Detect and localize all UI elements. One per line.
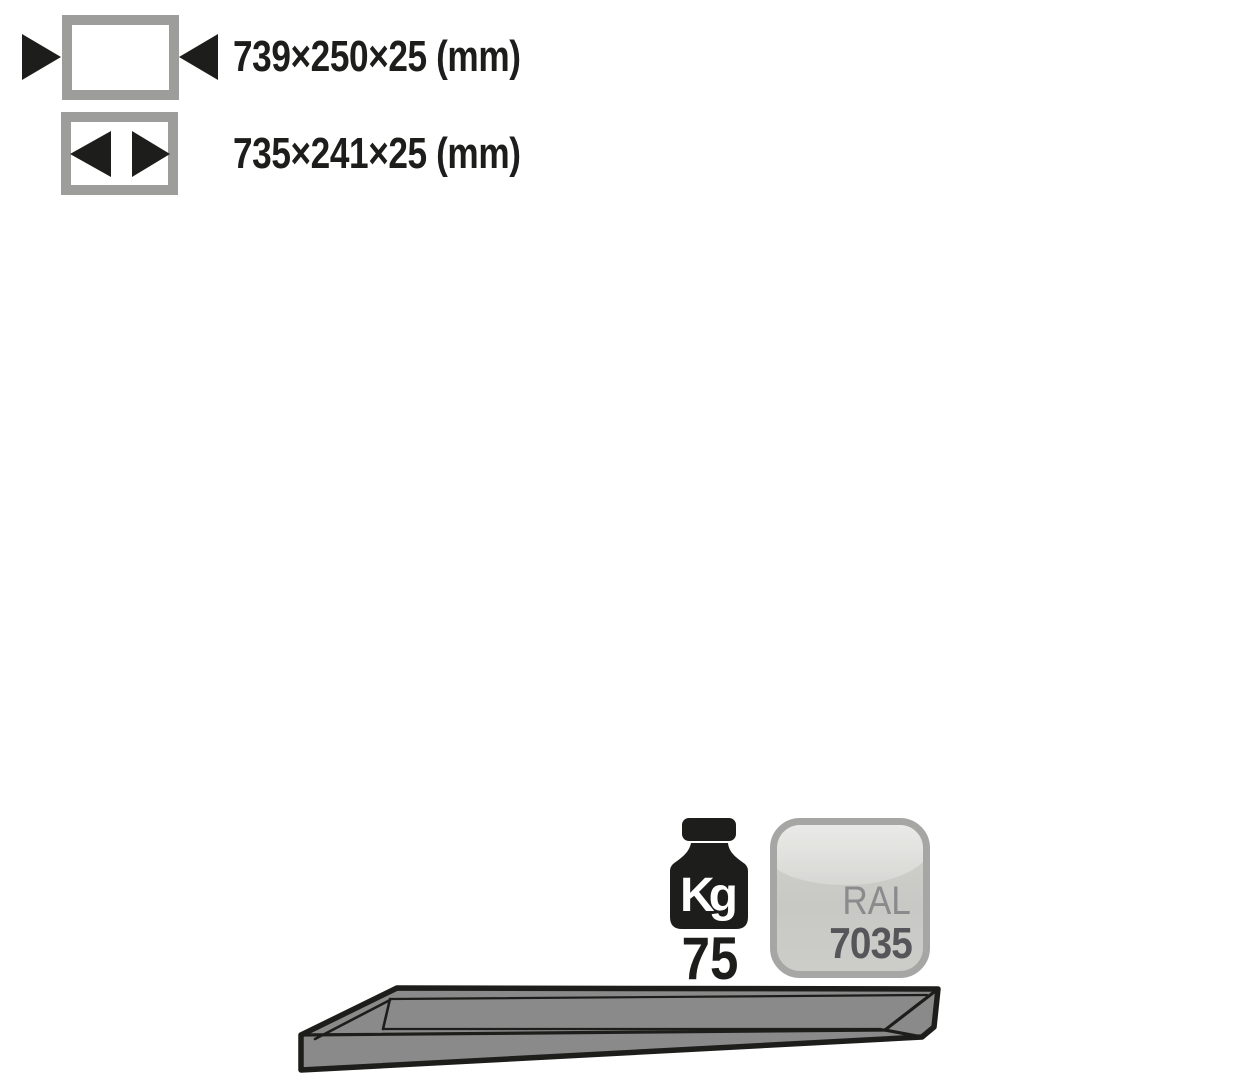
shelf-tray-illustration	[293, 982, 953, 1082]
arrow-left-icon	[179, 34, 218, 80]
arrow-left-icon	[70, 131, 111, 177]
weight-handle	[682, 818, 736, 841]
weight-kg-icon: Kg	[660, 812, 760, 932]
internal-dimension-text: 735×241×25 (mm)	[233, 130, 521, 178]
ral-code-label: 7035	[829, 922, 912, 966]
ral-7035-swatch: RAL 7035	[770, 818, 930, 978]
arrow-right-icon	[132, 131, 170, 177]
external-dimension-text: 739×250×25 (mm)	[233, 33, 521, 81]
max-load-block: Kg 75	[660, 812, 760, 932]
weight-unit-label: Kg	[680, 869, 738, 922]
product-spec-sheet: 739×250×25 (mm) 735×241×25 (mm) Kg 75 RA…	[0, 0, 1240, 1082]
external-dimension-icon	[62, 15, 179, 100]
max-load-value: 75	[668, 930, 753, 988]
arrow-right-icon	[22, 34, 61, 80]
ral-system-label: RAL	[843, 881, 911, 921]
